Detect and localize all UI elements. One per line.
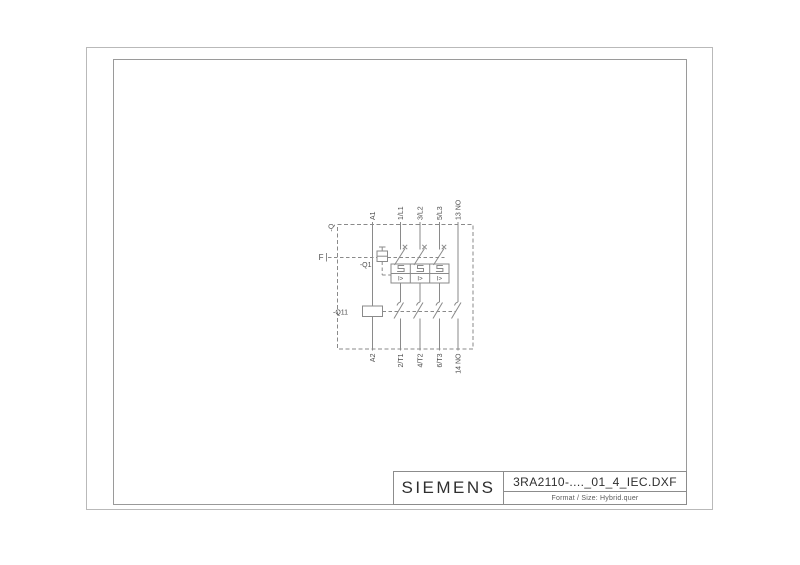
contactor-ref-label: -Q11 [333, 310, 348, 317]
terminal-label: 3/L2 [418, 206, 425, 220]
release-ref-label: F [319, 253, 324, 262]
thermal-overload-symbol [417, 266, 424, 272]
contactor-aux-contact [452, 222, 462, 351]
release-line-f: F [319, 253, 377, 262]
terminal-label: 6/T3 [437, 353, 444, 367]
cad-drawing-page: -Q A1 1/L1 3/L2 5/L3 13 NO A2 2/T1 4/T2 … [0, 0, 800, 565]
terminal-label: 2/T1 [398, 353, 405, 367]
breaker-mechanism-symbol [377, 247, 391, 275]
terminal-label: 1/L1 [398, 206, 405, 220]
siemens-logo: SIEMENS [394, 472, 504, 504]
breaker-ref-label: -Q1 [360, 262, 372, 269]
magnetic-trip-label: I> [398, 277, 404, 283]
drawing-filename: 3RA2110-...._01_4_IEC.DXF [504, 472, 686, 492]
contactor-q11: -Q11 [333, 222, 461, 351]
contactor-main-contact [394, 302, 404, 351]
thermal-overload-symbol [397, 266, 404, 272]
overload-trip-block: I> I> I> [391, 264, 449, 283]
thermal-overload-symbol [436, 266, 443, 272]
terminal-label: 14 NO [456, 353, 463, 374]
terminal-label: A2 [370, 353, 377, 362]
contactor-main-contact [433, 302, 443, 351]
terminal-label: A1 [370, 211, 377, 220]
terminal-label: 5/L3 [437, 206, 444, 220]
top-terminal-labels: A1 1/L1 3/L2 5/L3 13 NO [370, 199, 463, 220]
terminal-label: 13 NO [456, 199, 463, 220]
magnetic-trip-label: I> [437, 277, 443, 283]
breaker-pole-contact [395, 222, 408, 265]
contactor-coil-symbol [363, 306, 383, 317]
enclosure-ref-label: -Q [329, 223, 336, 231]
format-size-label: Format / Size: Hybrid.quer [504, 492, 686, 504]
magnetic-trip-label: I> [417, 277, 423, 283]
contactor-main-contact [414, 302, 424, 351]
circuit-breaker-q1: -Q1 [360, 222, 449, 302]
bottom-terminal-labels: A2 2/T1 4/T2 6/T3 14 NO [370, 353, 463, 374]
title-block: SIEMENS 3RA2110-...._01_4_IEC.DXF Format… [393, 471, 687, 505]
breaker-pole-contact [414, 222, 427, 265]
terminal-label: 4/T2 [418, 353, 425, 367]
breaker-pole-contact [434, 222, 447, 265]
